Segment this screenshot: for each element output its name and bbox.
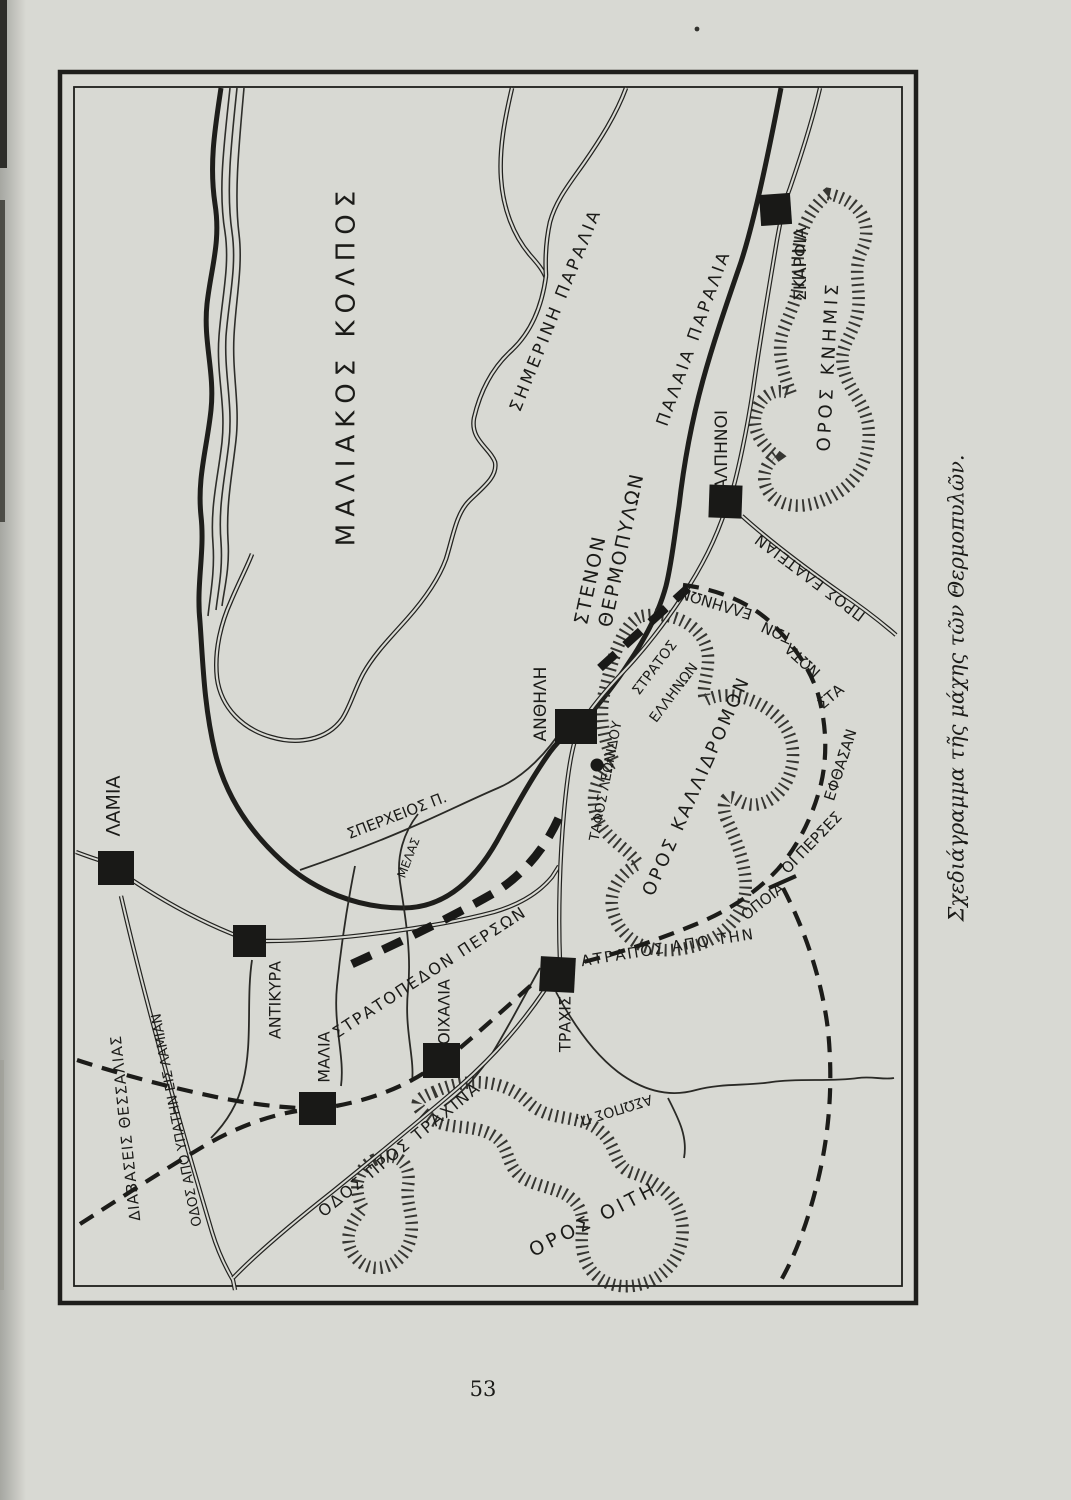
trachis-label: ΤΡΑΧΙΣ (556, 996, 575, 1053)
skarphia-label: ΣΚΑΡΦΙΑ (791, 227, 811, 301)
town-square-oichalia (423, 1043, 460, 1078)
anthele-label: ΑΝΘΗΛΗ (531, 667, 551, 742)
binding-mark-mid (0, 200, 5, 522)
oichalia-label: ΟΙΧΑΛΙΑ (435, 979, 454, 1045)
antikyra-label: ΑΝΤΙΚΥΡΑ (266, 961, 285, 1039)
book-page: ΜΑΛΙΑΚΟΣ ΚΟΛΠΟΣ ΣΗΜΕΡΙΝΗ ΠΑΡΑΛΙΑ ΠΑΛΑΙΑ … (0, 0, 1071, 1500)
ink-speck (695, 27, 700, 32)
town-square-anthele (555, 709, 597, 744)
figure-caption: Σχεδιάγραμμα τῆς μάχης τῶν Θερμοπυλῶν. (945, 454, 969, 922)
binding-mark-low (0, 1060, 4, 1290)
page-number: 53 (470, 1377, 497, 1401)
malia-label: ΜΑΛΙΑ (315, 1031, 334, 1082)
town-square-lamia (98, 851, 134, 885)
alpenoi-label: ΑΛΠΗΝΟΙ (712, 410, 732, 490)
town-square-antikyra (233, 925, 266, 957)
paper-background (0, 0, 1071, 1500)
sea-label: ΜΑΛΙΑΚΟΣ ΚΟΛΠΟΣ (332, 184, 362, 546)
binding-mark-top (0, 0, 7, 168)
town-square-malia (299, 1092, 336, 1125)
thermopylae-map-figure: ΜΑΛΙΑΚΟΣ ΚΟΛΠΟΣ ΣΗΜΕΡΙΝΗ ΠΑΡΑΛΙΑ ΠΑΛΑΙΑ … (0, 0, 1071, 1500)
town-square-skarphia (759, 193, 792, 226)
town-square-trachis (539, 956, 576, 993)
lamia-label: ΛΑΜΙΑ (103, 776, 125, 837)
